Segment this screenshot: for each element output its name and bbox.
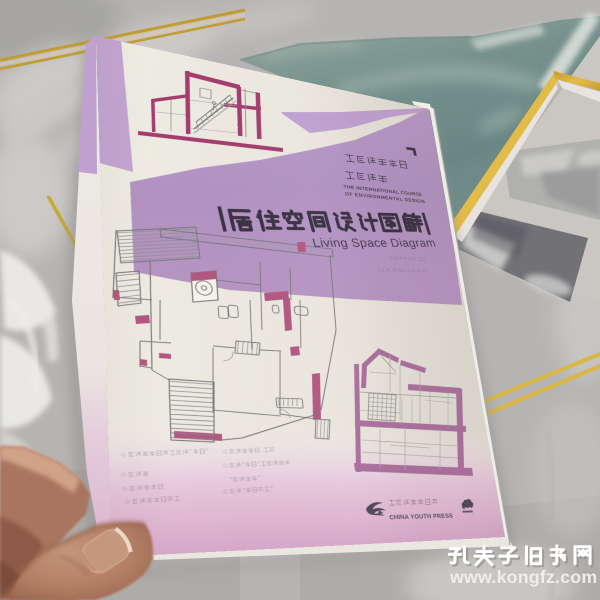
svg-text:www.kongfz.com: www.kongfz.com bbox=[449, 567, 597, 587]
